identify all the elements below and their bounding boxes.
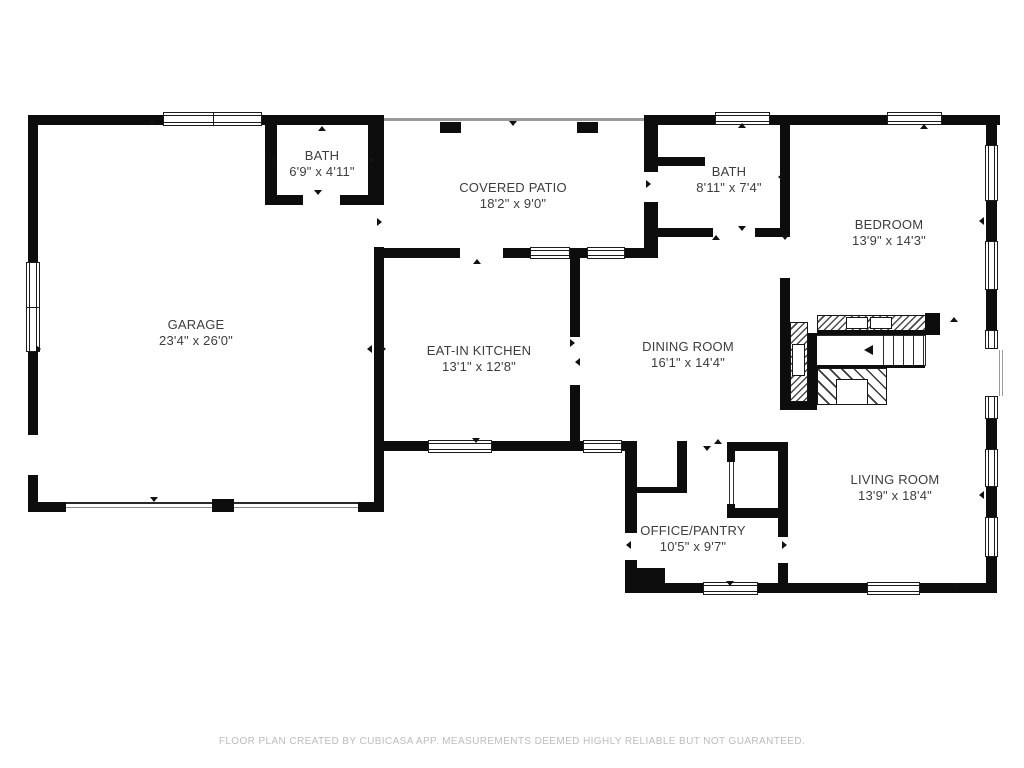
wall [986,115,997,145]
wall [778,442,788,537]
patio-pillar [440,122,461,133]
window [887,112,942,125]
wall [28,115,38,262]
wall [627,583,703,593]
wall [212,499,234,512]
room-label-eat-in-kitchen: EAT-IN KITCHEN 13'1" x 12'8" [427,343,531,375]
opening-marker-icon [369,156,374,164]
room-dims: 13'9" x 18'4" [851,488,940,504]
room-dims: 18'2" x 9'0" [459,196,567,212]
room-name: BATH [696,164,762,180]
window [985,330,998,349]
wall [374,248,460,258]
opening-marker-icon [148,120,156,125]
wall [780,278,790,410]
room-dims: 23'4" x 26'0" [159,333,233,349]
room-dims: 6'9" x 4'11" [289,164,355,180]
wall [727,504,735,518]
floor-plan-canvas: BATH 6'9" x 4'11" COVERED PATIO 18'2" x … [0,0,1024,768]
window [163,112,262,126]
room-name: DINING ROOM [642,339,734,355]
window [428,440,492,453]
garage-door [234,502,358,508]
opening-marker-icon [703,446,711,451]
wall [727,508,788,518]
opening-marker-icon [952,583,960,588]
room-dims: 13'1" x 12'8" [427,359,531,375]
wall [625,443,637,533]
opening-marker-icon [472,438,480,443]
wall [28,352,38,435]
opening-marker-icon [979,491,984,499]
window [587,247,625,259]
opening-marker-icon [738,226,746,231]
wall [986,487,997,517]
room-label-bedroom: BEDROOM 13'9" x 14'3" [852,217,926,249]
room-name: OFFICE/PANTRY [640,523,745,539]
patio-pillar [577,122,598,133]
wall [28,502,66,512]
footer-disclaimer: FLOOR PLAN CREATED BY CUBICASA APP. MEAS… [0,736,1024,747]
opening-marker-icon [950,317,958,322]
opening-marker-icon [318,126,326,131]
opening-marker-icon [575,358,580,366]
wall [780,402,817,410]
window [985,145,998,201]
wall [986,418,997,449]
window [985,396,998,419]
stair-landing-box [846,317,868,329]
room-label-living-room: LIVING ROOM 13'9" x 18'4" [851,472,940,504]
room-dims: 16'1" x 14'4" [642,355,734,371]
wall [340,195,384,205]
window [985,241,998,290]
room-label-covered-patio: COVERED PATIO 18'2" x 9'0" [459,180,567,212]
opening-marker-icon [36,345,41,353]
wall [503,248,530,258]
opening-marker-icon [646,180,651,188]
closet-sliding-door [729,462,734,504]
room-dims: 13'9" x 14'3" [852,233,926,249]
wall [727,448,735,462]
room-name: LIVING ROOM [851,472,940,488]
window [26,262,40,352]
window [583,440,622,453]
opening-marker-icon [377,218,382,226]
wall [374,441,428,451]
wall [758,583,867,593]
opening-marker-icon [920,124,928,129]
wall [925,313,940,335]
wall [625,248,652,258]
wall [492,441,583,451]
room-label-dining-room: DINING ROOM 16'1" x 14'4" [642,339,734,371]
wall [727,442,788,451]
opening-marker-icon [738,123,746,128]
window [867,582,920,595]
room-label-office-pantry: OFFICE/PANTRY 10'5" x 9'7" [640,523,745,555]
stair-landing-box [792,344,805,376]
wall [262,115,384,125]
opening-marker-icon [381,345,386,353]
wall [28,115,163,125]
fireplace-box [836,379,868,405]
wall [650,228,713,237]
room-label-bath-1: BATH 6'9" x 4'11" [289,148,355,180]
garage-door [66,502,212,508]
stair-landing [817,335,884,366]
opening-marker-icon [712,235,720,240]
opening-marker-icon [150,497,158,502]
opening-marker-icon [726,581,734,586]
room-dims: 10'5" x 9'7" [640,539,745,555]
wall [986,290,997,330]
room-name: EAT-IN KITCHEN [427,343,531,359]
opening-marker-icon [979,217,984,225]
wall [570,252,580,337]
opening-marker-icon [270,155,275,163]
room-name: BATH [289,148,355,164]
room-name: BEDROOM [852,217,926,233]
opening-marker-icon [473,259,481,264]
wall [374,247,384,512]
wall [677,441,687,490]
opening-marker-icon [778,173,783,181]
opening-marker-icon [714,439,722,444]
opening-marker-icon [782,541,787,549]
room-name: COVERED PATIO [459,180,567,196]
opening-marker-icon [626,541,631,549]
wall [986,201,997,241]
wall [265,195,303,205]
window [985,517,998,557]
opening-marker-icon [781,235,789,240]
sliding-door [999,350,1003,396]
wall [645,115,715,125]
room-dims: 8'11" x 7'4" [696,180,762,196]
room-label-garage: GARAGE 23'4" x 26'0" [159,317,233,349]
stair-landing-box [870,317,892,329]
window-divider [213,113,214,125]
opening-marker-icon [367,345,372,353]
room-name: GARAGE [159,317,233,333]
opening-marker-icon [509,121,517,126]
stair-direction-icon [864,345,873,355]
wall [808,333,817,409]
opening-marker-icon [314,190,322,195]
window [530,247,570,259]
window [985,449,998,487]
window-divider [27,307,39,308]
room-label-bath-2: BATH 8'11" x 7'4" [696,164,762,196]
opening-marker-icon [570,339,575,347]
stair-treads [883,335,926,366]
